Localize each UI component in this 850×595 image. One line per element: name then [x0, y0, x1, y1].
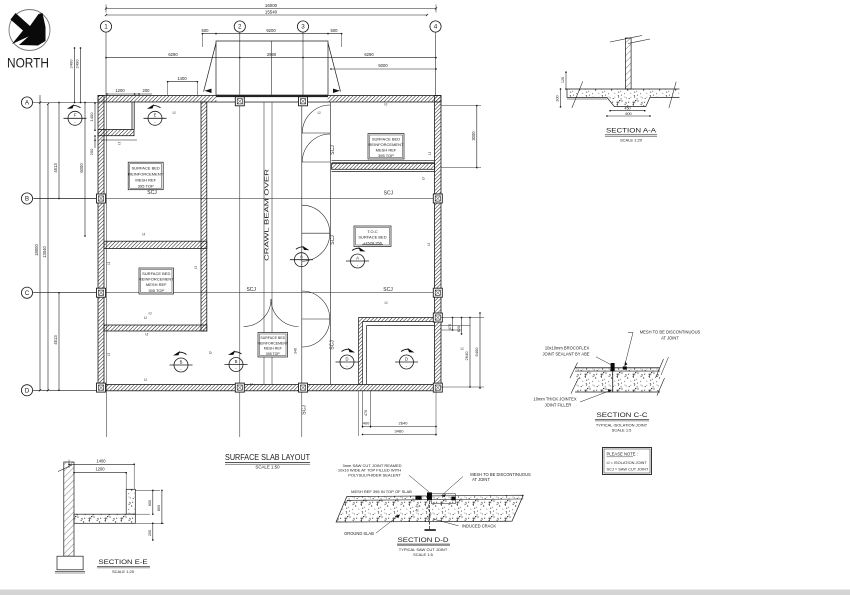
svg-text:6290: 6290	[364, 52, 374, 57]
svg-text:IJ: IJ	[144, 316, 147, 320]
svg-text:2640: 2640	[464, 351, 469, 361]
svg-text:15540: 15540	[265, 10, 278, 15]
svg-text:IJ: IJ	[118, 142, 122, 145]
svg-text:10x10mm BROCOFLEX: 10x10mm BROCOFLEX	[545, 345, 590, 350]
svg-text:5400: 5400	[474, 347, 479, 357]
svg-text:IJ: IJ	[173, 111, 176, 115]
svg-text:MESH REF: MESH REF	[264, 347, 282, 351]
svg-text:MESH REF: MESH REF	[146, 282, 167, 287]
svg-text:AT JOINT: AT JOINT	[661, 336, 679, 341]
svg-text:MESH REF 395 IN TOP OF SLAB: MESH REF 395 IN TOP OF SLAB	[351, 489, 412, 494]
svg-text:SURFACE SLAB LAYOUT: SURFACE SLAB LAYOUT	[225, 453, 310, 462]
svg-text:SECTION D-D: SECTION D-D	[398, 537, 449, 544]
svg-text:POLYSULPHIDER SEALENT: POLYSULPHIDER SEALENT	[348, 472, 401, 477]
svg-text:SCALE 1:20: SCALE 1:20	[620, 137, 643, 142]
svg-text:B: B	[235, 359, 238, 364]
svg-text:MESH TO BE DISCONTINUOUS: MESH TO BE DISCONTINUOUS	[640, 330, 701, 335]
svg-text:200: 200	[89, 148, 94, 155]
svg-text:IJ: IJ	[422, 177, 426, 180]
svg-text:SURFACE BED: SURFACE BED	[132, 165, 160, 170]
svg-text:SCJ = SAW CUT JOINT: SCJ = SAW CUT JOINT	[607, 467, 649, 472]
svg-text:REINFORCEMENT: REINFORCEMENT	[257, 341, 288, 345]
svg-text:300: 300	[556, 95, 560, 101]
svg-text:346: 346	[294, 348, 298, 354]
svg-text:PLEASE NOTE :: PLEASE NOTE :	[607, 452, 638, 457]
svg-text:A: A	[300, 254, 303, 259]
svg-text:IJ: IJ	[427, 243, 431, 246]
svg-text:F: F	[74, 113, 77, 118]
svg-text:IJ: IJ	[461, 347, 464, 351]
svg-text:IJ: IJ	[107, 353, 111, 356]
svg-text:SURFACE BED: SURFACE BED	[142, 271, 170, 276]
svg-text:IJ: IJ	[428, 152, 432, 155]
svg-text:395 TOP: 395 TOP	[266, 352, 281, 356]
svg-text:SCALE 1:5: SCALE 1:5	[612, 428, 633, 433]
svg-text:2: 2	[238, 24, 242, 31]
svg-text:D: D	[405, 356, 408, 361]
svg-text:470: 470	[448, 324, 452, 330]
svg-text:600: 600	[148, 500, 152, 506]
svg-text:6290: 6290	[168, 52, 178, 57]
svg-text:SCJ: SCJ	[384, 190, 394, 196]
svg-text:3: 3	[301, 24, 305, 31]
svg-text:JOINT SEALANT BY ABE: JOINT SEALANT BY ABE	[542, 351, 589, 356]
svg-text:1200: 1200	[95, 467, 105, 472]
svg-text:800: 800	[157, 505, 161, 511]
svg-text:E: E	[154, 113, 157, 118]
svg-text:600: 600	[625, 112, 631, 116]
svg-text:2490: 2490	[75, 59, 80, 69]
svg-text:9200: 9200	[266, 28, 276, 33]
svg-text:SCALE 1:25: SCALE 1:25	[112, 569, 135, 574]
svg-text:NORTH: NORTH	[7, 55, 49, 71]
svg-text:IJ: IJ	[385, 301, 388, 305]
svg-text:18000: 18000	[34, 244, 39, 256]
svg-text:JOINT FILLER: JOINT FILLER	[545, 402, 572, 407]
svg-text:MESH REF: MESH REF	[376, 147, 397, 152]
svg-text:IJ: IJ	[384, 103, 387, 107]
svg-text:INDUCED CRACK: INDUCED CRACK	[462, 523, 496, 528]
svg-text:IJ: IJ	[194, 266, 198, 269]
svg-text:IJ: IJ	[208, 351, 212, 354]
svg-text:40: 40	[415, 509, 419, 513]
svg-text:SCALE 1:5: SCALE 1:5	[413, 552, 434, 557]
svg-text:IJ: IJ	[149, 312, 152, 316]
svg-text:IJ: IJ	[250, 382, 253, 386]
svg-text:REINFORCEMENT: REINFORCEMENT	[128, 171, 163, 176]
svg-text:SCJ: SCJ	[147, 190, 157, 196]
svg-text:SCALE 1:50: SCALE 1:50	[255, 465, 280, 470]
svg-text:4513: 4513	[53, 163, 58, 173]
svg-text:CRAWL BEAM OVER: CRAWL BEAM OVER	[264, 169, 270, 261]
svg-text:4: 4	[434, 24, 438, 31]
svg-text:3000: 3000	[471, 131, 476, 141]
svg-text:6000: 6000	[79, 163, 84, 173]
svg-text:SURFACE BED: SURFACE BED	[358, 235, 386, 240]
svg-text:AT JOINT: AT JOINT	[472, 477, 490, 482]
svg-text:D: D	[345, 356, 348, 361]
svg-text:SECTION E-E: SECTION E-E	[99, 559, 149, 566]
svg-text:REINFORCEMENT: REINFORCEMENT	[139, 277, 174, 282]
svg-text:SCJ: SCJ	[302, 405, 308, 415]
svg-text:IJ: IJ	[318, 111, 321, 115]
svg-text:GROUND SLAB: GROUND SLAB	[344, 531, 374, 536]
svg-text:SECTION C-C: SECTION C-C	[597, 412, 648, 419]
svg-text:C: C	[25, 290, 30, 297]
svg-text:500: 500	[202, 28, 210, 33]
svg-text:125: 125	[561, 77, 565, 83]
svg-text:IJ: IJ	[144, 378, 147, 382]
svg-text:IJ: IJ	[107, 262, 111, 265]
svg-text:1400: 1400	[89, 112, 94, 122]
svg-text:2400: 2400	[69, 59, 74, 69]
svg-text:B: B	[180, 359, 183, 364]
svg-text:SURFACE BED: SURFACE BED	[372, 136, 400, 141]
svg-text:1200: 1200	[115, 88, 125, 93]
svg-text:MESH REF: MESH REF	[135, 177, 156, 182]
svg-text:450: 450	[624, 107, 630, 111]
svg-text:T.O.C: T.O.C	[367, 229, 377, 234]
svg-text:3460: 3460	[395, 429, 405, 434]
svg-text:REINFORCEMENT: REINFORCEMENT	[369, 142, 404, 147]
svg-text:1: 1	[104, 24, 108, 31]
svg-text:SCJ: SCJ	[330, 145, 336, 155]
svg-text:395 TOP: 395 TOP	[378, 153, 394, 158]
svg-text:200: 200	[143, 88, 151, 93]
svg-text:1400: 1400	[96, 458, 106, 463]
svg-text:SCJ: SCJ	[330, 340, 336, 350]
svg-text:1400: 1400	[177, 76, 187, 81]
svg-text:5000: 5000	[378, 63, 388, 68]
svg-text:IJ: IJ	[145, 332, 148, 336]
svg-text:SCJ: SCJ	[383, 287, 393, 293]
svg-text:395 TOP: 395 TOP	[138, 183, 154, 188]
svg-text:SCJ: SCJ	[330, 235, 336, 245]
svg-text:500: 500	[331, 28, 339, 33]
svg-text:400: 400	[363, 420, 370, 425]
svg-text:10mm THICK JOINTEX: 10mm THICK JOINTEX	[533, 396, 576, 401]
svg-text:820: 820	[457, 326, 461, 332]
svg-text:2640: 2640	[399, 420, 409, 425]
svg-text:395 TOP: 395 TOP	[148, 288, 164, 293]
svg-text:SCJ: SCJ	[246, 287, 256, 293]
svg-text:13040: 13040	[42, 246, 47, 258]
svg-text:D: D	[25, 388, 30, 395]
svg-text:A: A	[356, 255, 359, 260]
svg-text:470: 470	[364, 410, 368, 416]
svg-text:16000: 16000	[265, 3, 278, 8]
svg-text:+1528.250: +1528.250	[363, 240, 383, 245]
svg-text:200: 200	[148, 530, 152, 536]
svg-text:B: B	[25, 196, 29, 203]
svg-text:SURFACE BED: SURFACE BED	[260, 336, 285, 340]
svg-text:IJ: IJ	[142, 232, 145, 236]
svg-text:SECTION A-A: SECTION A-A	[606, 128, 657, 135]
svg-text:IJ = ISOLATION JOINT: IJ = ISOLATION JOINT	[607, 460, 648, 465]
svg-text:4513: 4513	[53, 335, 58, 345]
